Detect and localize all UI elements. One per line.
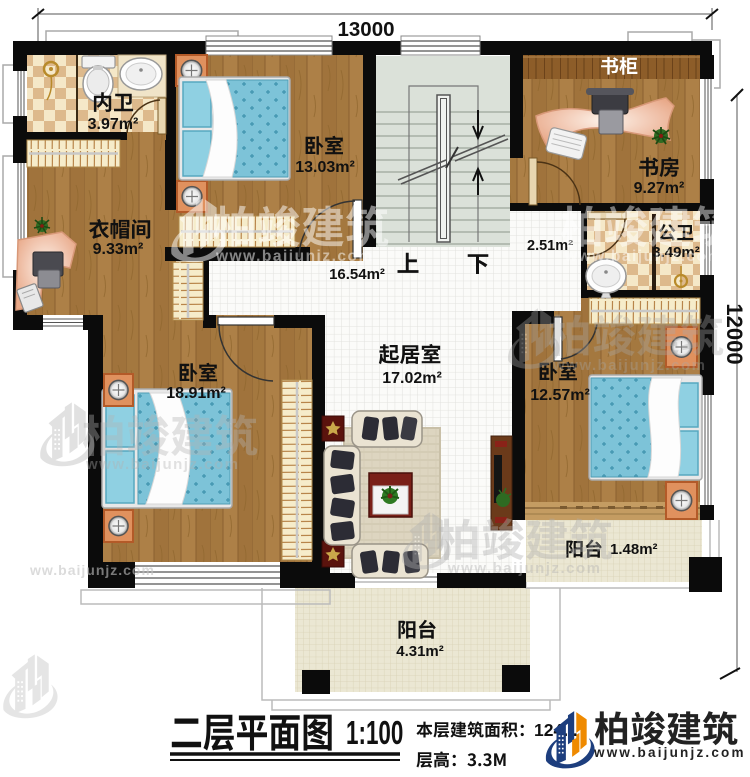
- svg-text:www.baijunjz.com: www.baijunjz.com: [593, 745, 746, 760]
- svg-text:13.03m²: 13.03m²: [295, 159, 355, 176]
- svg-text:www.baijunjz.com: www.baijunjz.com: [85, 456, 239, 473]
- svg-text:1.48m²: 1.48m²: [610, 541, 658, 558]
- svg-text:17.02m²: 17.02m²: [382, 370, 442, 387]
- svg-text:12.57m²: 12.57m²: [530, 387, 590, 404]
- svg-text:4.31m²: 4.31m²: [396, 643, 444, 660]
- svg-text:www.baijunjz.com: www.baijunjz.com: [215, 248, 374, 265]
- svg-text:16.54m²: 16.54m²: [329, 266, 385, 283]
- svg-text:www.baijunjz.com: www.baijunjz.com: [447, 560, 601, 577]
- svg-text:12000: 12000: [722, 303, 747, 364]
- svg-text:13000: 13000: [337, 18, 394, 41]
- svg-text:1:100: 1:100: [346, 714, 403, 751]
- svg-text:www.baijunjz.com: www.baijunjz.com: [564, 248, 723, 265]
- svg-text:3.97m²: 3.97m²: [88, 116, 139, 133]
- svg-text:18.91m²: 18.91m²: [166, 385, 226, 402]
- svg-text:9.33m²: 9.33m²: [93, 241, 144, 258]
- svg-text:www.baijunjz.com: www.baijunjz.com: [552, 357, 706, 374]
- svg-text:ww.baijunjz.com: ww.baijunjz.com: [29, 562, 155, 578]
- svg-text:9.27m²: 9.27m²: [634, 180, 685, 197]
